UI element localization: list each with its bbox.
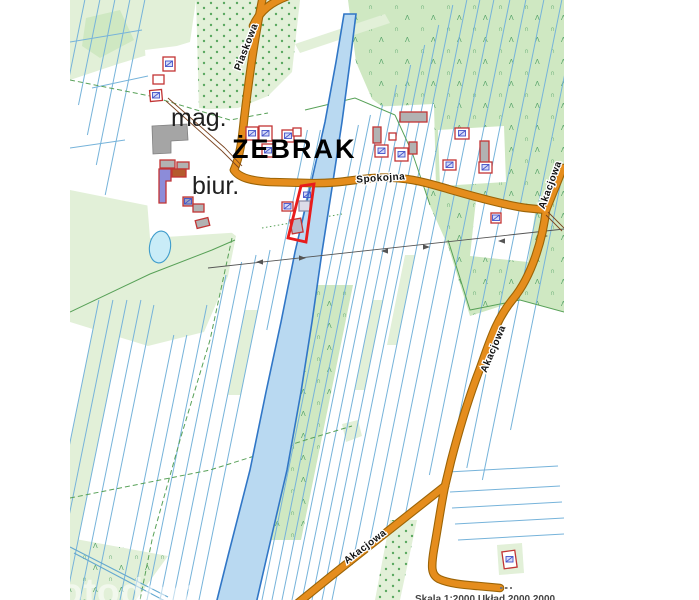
building xyxy=(409,142,417,154)
building-symbol-icon xyxy=(304,192,311,198)
area-label: biur. xyxy=(192,172,239,200)
building-symbol-icon xyxy=(378,148,385,154)
cadastral-map: ∩ Λ PiaskowaSpokojnaAkacjowaAkacjowaAkac… xyxy=(0,0,699,600)
building xyxy=(389,133,396,140)
building-symbol-icon xyxy=(482,165,489,171)
building-symbol-icon xyxy=(398,152,405,158)
building-symbol-icon xyxy=(284,204,291,210)
building xyxy=(172,169,186,177)
building xyxy=(400,112,427,122)
map-canvas[interactable]: ∩ Λ PiaskowaSpokojnaAkacjowaAkacjowaAkac… xyxy=(0,0,699,600)
building xyxy=(480,141,489,163)
building-symbol-icon xyxy=(153,93,160,99)
map-scale-note: Skala 1:2000 Układ 2000 2000 xyxy=(415,594,556,600)
building xyxy=(373,127,381,143)
building-symbol-icon xyxy=(166,61,173,67)
building-symbol-icon xyxy=(185,199,192,205)
building xyxy=(160,160,175,168)
building xyxy=(177,162,189,169)
building xyxy=(299,201,310,211)
place-name-label: ŻEBRAK xyxy=(232,134,357,164)
building-symbol-icon xyxy=(446,162,453,168)
building-symbol-icon xyxy=(493,215,500,221)
building xyxy=(193,204,204,212)
area-label: mag. xyxy=(171,104,227,132)
watermark-otodom: otodom xyxy=(60,571,202,600)
building-symbol-icon xyxy=(506,557,513,563)
building-symbol-icon xyxy=(459,131,466,137)
building xyxy=(153,75,164,84)
